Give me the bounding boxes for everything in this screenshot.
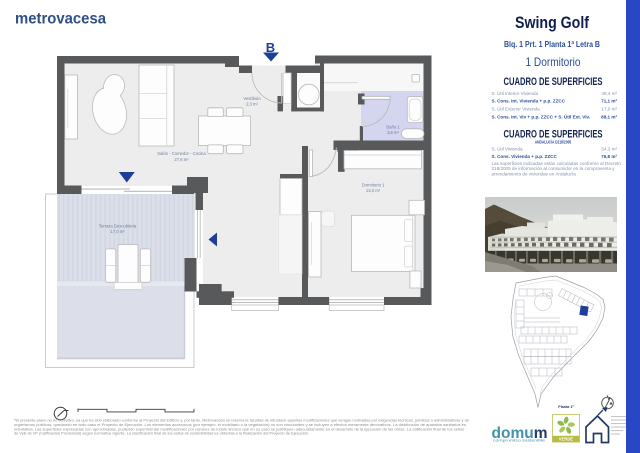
svg-text:Blq. 1 Prt. 1 Planta 1ª Letra: Blq. 1 Prt. 1 Planta 1ª Letra B — [504, 40, 600, 49]
svg-text:71,1 m²: 71,1 m² — [601, 99, 617, 104]
svg-text:Dormitorio 1: Dormitorio 1 — [362, 183, 385, 188]
svg-text:S. Útil Exterior Vivienda: S. Útil Exterior Vivienda — [492, 106, 541, 112]
svg-text:S. Cons. Vivienda + p.p. ZZCC: S. Cons. Vivienda + p.p. ZZCC — [492, 154, 558, 159]
svg-text:27,6 m²: 27,6 m² — [174, 157, 189, 162]
svg-text:218/2005 de información al con: 218/2005 de información al consumidor en… — [492, 166, 616, 171]
svg-text:*El presente plano no es defin: *El presente plano no es definitivo, ya … — [14, 419, 469, 423]
svg-text:Terraza Descubierta: Terraza Descubierta — [99, 224, 137, 229]
svg-text:Planta 1ª: Planta 1ª — [558, 404, 574, 409]
svg-text:arrendamiento de viviendas en: arrendamiento de viviendas en Andalucía — [492, 171, 577, 176]
svg-text:49,4 m²: 49,4 m² — [601, 91, 617, 96]
svg-text:ANDALUCÍA D218/2005: ANDALUCÍA D218/2005 — [535, 139, 572, 144]
svg-text:13,0 m²: 13,0 m² — [366, 188, 381, 193]
svg-text:orientativa. Las superficies e: orientativa. Las superficies expresadas … — [14, 427, 464, 431]
svg-text:2,3 m²: 2,3 m² — [246, 102, 258, 107]
svg-text:1 Dormitorio: 1 Dormitorio — [526, 55, 581, 69]
svg-text:Vestíbulo: Vestíbulo — [243, 96, 261, 101]
svg-text:metrovacesa: metrovacesa — [15, 11, 106, 28]
svg-text:54,3 m²: 54,3 m² — [601, 146, 617, 151]
svg-text:organismos públicos, quedando: organismos públicos, quedando en todo ca… — [14, 423, 466, 427]
svg-text:17,0 m²: 17,0 m² — [110, 229, 125, 234]
svg-text:compromiso sostenible: compromiso sostenible — [493, 438, 545, 442]
svg-text:S. Útil Interior Vivienda: S. Útil Interior Vivienda — [492, 90, 539, 96]
svg-text:CUADRO DE SUPERFICIES: CUADRO DE SUPERFICIES — [504, 76, 603, 88]
svg-text:Swing Golf: Swing Golf — [515, 14, 589, 32]
svg-text:de VyE de VP (Calificación Pro: de VyE de VP (Calificación Provisional) … — [14, 432, 309, 436]
svg-text:Baño 1: Baño 1 — [386, 125, 400, 130]
svg-text:3,6 m²: 3,6 m² — [387, 130, 399, 135]
svg-text:88,1 m²: 88,1 m² — [601, 114, 617, 119]
svg-text:76,8 m²: 76,8 m² — [601, 154, 617, 159]
svg-text:17,0 m²: 17,0 m² — [601, 107, 617, 112]
svg-text:S. Cons. Int. Viv + p.p. ZZCC: S. Cons. Int. Viv + p.p. ZZCC + S. Útil … — [492, 113, 591, 119]
svg-text:Salón - Comedor - Cocina: Salón - Comedor - Cocina — [157, 151, 206, 156]
svg-text:S. Útil Vivienda: S. Útil Vivienda — [492, 145, 524, 151]
svg-text:Las superficies indicadas está: Las superficies indicadas están calculad… — [492, 161, 622, 166]
svg-text:VERDE: VERDE — [559, 437, 574, 442]
svg-text:S. Cons. Int. Vivienda + p.p.: S. Cons. Int. Vivienda + p.p. ZZCC — [492, 99, 566, 104]
